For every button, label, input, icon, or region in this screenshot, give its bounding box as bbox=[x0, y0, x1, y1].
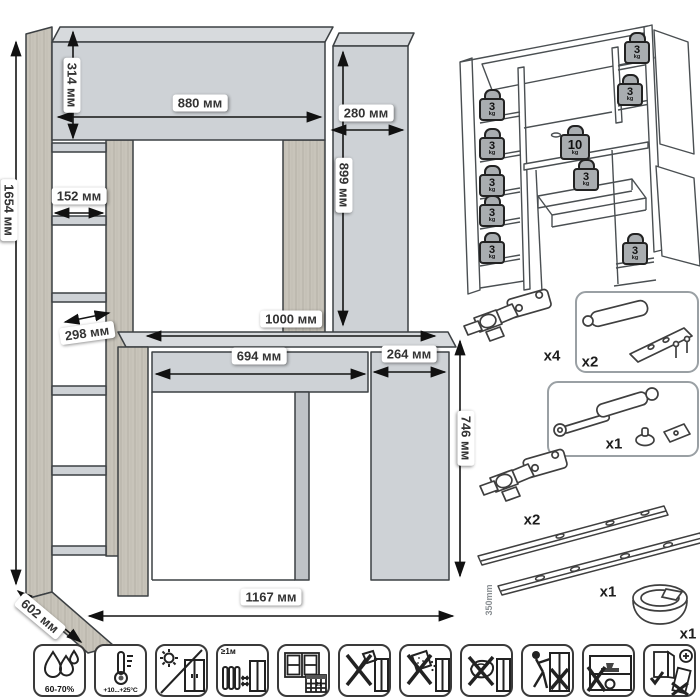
assembly-diagram-page: 1654 мм 314 мм 880 мм 280 мм 899 мм 152 … bbox=[0, 0, 700, 700]
weight-left-shelf-3: 3kg bbox=[479, 165, 505, 197]
dim-side-width: 280 мм bbox=[339, 105, 394, 122]
crossed-axe-cabinet-icon bbox=[341, 647, 390, 696]
humidity-label: 60-70% bbox=[35, 684, 84, 694]
hardware-corner-hinge bbox=[464, 289, 552, 341]
care-icon-humidity: 60-70% bbox=[33, 644, 86, 697]
wall-anchor-icon bbox=[646, 647, 695, 696]
gas-lift-qty: x1 bbox=[606, 436, 623, 453]
crossed-cloth-cabinet-icon bbox=[463, 647, 512, 696]
dim-shelf-width: 152 мм bbox=[52, 188, 107, 205]
dim-side-height: 899 мм bbox=[336, 158, 353, 213]
weight-left-shelf-2: 3kg bbox=[479, 128, 505, 160]
slides-qty: x1 bbox=[600, 584, 617, 601]
anvil-weight-cabinet-icon bbox=[585, 647, 634, 696]
hardware-hinge-2 bbox=[480, 449, 568, 501]
hardware-cable-grommet bbox=[633, 585, 687, 624]
care-icon-no-dragging bbox=[521, 644, 574, 697]
care-icon-temperature: +10...+25°C bbox=[94, 644, 147, 697]
dim-cabinet-width: 264 мм bbox=[382, 346, 437, 363]
weight-hutch-top-right: 3kg bbox=[624, 32, 650, 64]
dim-desktop-width: 1000 мм bbox=[260, 311, 322, 328]
dim-hutch-width: 880 мм bbox=[173, 95, 228, 112]
dim-hutch-height: 314 мм bbox=[64, 58, 81, 113]
distance-label: ≥1м bbox=[221, 647, 236, 656]
care-icon-no-sharp-tools bbox=[338, 644, 391, 697]
weight-drawer: 3kg bbox=[573, 159, 599, 191]
dim-total-width: 1167 мм bbox=[240, 589, 301, 606]
calendar-day-label: 21 bbox=[316, 682, 322, 688]
dim-total-height: 1654 мм bbox=[1, 179, 18, 241]
damper-qty: x2 bbox=[582, 354, 599, 371]
dim-drawer-width: 694 мм bbox=[232, 348, 287, 365]
weight-lower-cabinet: 3kg bbox=[622, 233, 648, 265]
crossed-powder-cabinet-icon bbox=[402, 647, 451, 696]
hardware-gas-lift-box bbox=[548, 382, 698, 456]
care-icon-heat-distance: ≥1м bbox=[216, 644, 269, 697]
hinge2-qty: x2 bbox=[524, 512, 541, 529]
temperature-label: +10...+25°C bbox=[96, 687, 145, 694]
weight-desktop: 10kg bbox=[560, 125, 590, 160]
sun-cabinet-icon bbox=[158, 647, 207, 696]
care-icon-no-sunlight bbox=[155, 644, 208, 697]
weight-hutch-right-shelf: 3kg bbox=[617, 74, 643, 106]
hinge-qty: x4 bbox=[544, 348, 561, 365]
weight-left-shelf-4: 3kg bbox=[479, 195, 505, 227]
care-icon-no-overload bbox=[582, 644, 635, 697]
weight-left-shelf-5: 3kg bbox=[479, 232, 505, 264]
dim-desk-height: 746 мм bbox=[458, 411, 475, 466]
care-icon-secure-to-wall bbox=[643, 644, 696, 697]
care-icon-ventilation: 21 bbox=[277, 644, 330, 697]
hardware-damper bbox=[583, 299, 692, 362]
weight-left-shelf-1: 3kg bbox=[479, 89, 505, 121]
care-icon-no-abrasives bbox=[399, 644, 452, 697]
slides-length-label: 350mm bbox=[484, 584, 494, 615]
window-calendar-icon bbox=[280, 647, 329, 696]
person-pushing-cabinet-icon bbox=[524, 647, 573, 696]
care-icon-no-wet-cloth bbox=[460, 644, 513, 697]
hardware-drawer-slides bbox=[478, 506, 700, 595]
grommet-qty: x1 bbox=[680, 626, 697, 643]
